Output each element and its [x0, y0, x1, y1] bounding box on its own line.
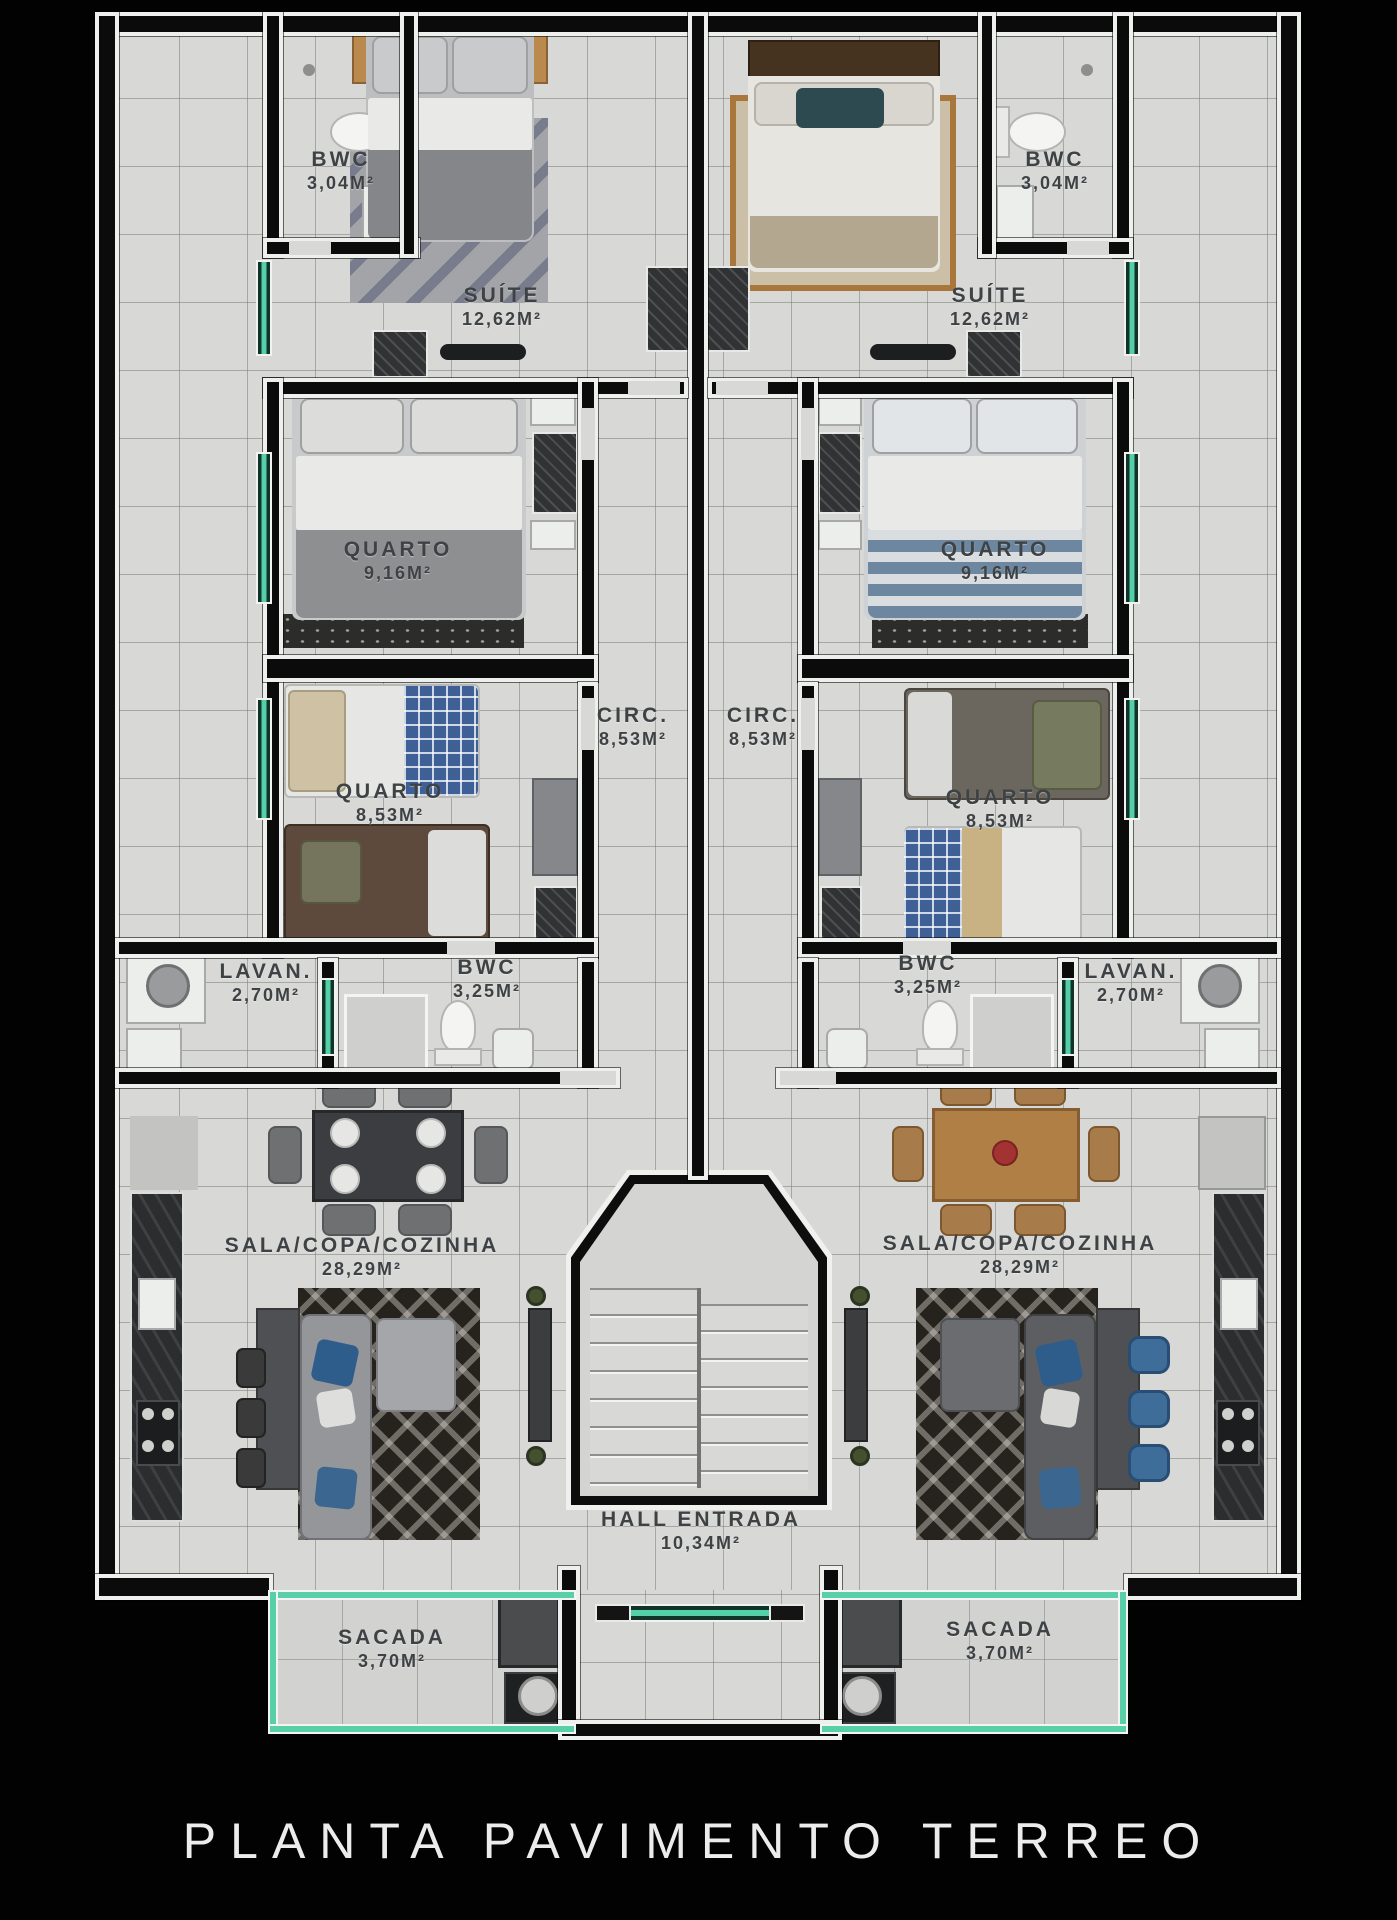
window-icon: [256, 260, 272, 356]
stool-icon: [1128, 1336, 1170, 1374]
wall-suite-quarto1-left: [263, 378, 688, 398]
balcony-rail: [820, 1590, 1128, 1600]
bed-sheet: [296, 456, 522, 530]
dresser-icon: [818, 432, 862, 514]
balcony-rail: [268, 1590, 576, 1600]
pillow-icon: [976, 398, 1078, 454]
toilet-tank: [434, 1048, 482, 1066]
balcony-rail: [820, 1724, 1128, 1734]
wall-wet-top-left: [115, 938, 598, 958]
room-name: QUARTO: [270, 780, 510, 805]
door-opening: [780, 1071, 836, 1085]
room-area: 3,70M²: [272, 1651, 512, 1672]
stool-icon: [1128, 1444, 1170, 1482]
room-name: SUÍTE: [382, 284, 622, 309]
pillow-icon: [314, 1466, 358, 1510]
room-name: CIRC.: [683, 704, 843, 729]
chair-icon: [474, 1126, 508, 1184]
wall-sala-top-right: [776, 1068, 1281, 1088]
room-area: 12,62M²: [870, 309, 1110, 330]
plant-icon: [850, 1286, 870, 1306]
room-name: QUARTO: [278, 538, 518, 563]
stair-steps: [700, 1304, 808, 1490]
room-name: BWC: [935, 148, 1175, 173]
wall-sala-top-left: [115, 1068, 620, 1088]
pillow-icon: [796, 88, 884, 128]
chair-icon: [892, 1126, 924, 1182]
chair-icon: [398, 1204, 452, 1236]
room-name: QUARTO: [880, 786, 1120, 811]
dresser-icon: [532, 432, 578, 514]
room-name: LAVAN.: [146, 960, 386, 985]
kitchen-sink-icon: [138, 1278, 176, 1330]
kitchen-counter: [1212, 1192, 1266, 1522]
centerpiece-icon: [992, 1140, 1018, 1166]
room-label-quarto1-right: QUARTO 9,16M²: [875, 538, 1115, 584]
shower-head-icon: [303, 64, 315, 76]
room-label-bwc-suite-right: BWC 3,04M²: [935, 148, 1175, 194]
wall-hall-bottom: [558, 1720, 842, 1740]
plant-icon: [850, 1446, 870, 1466]
bed-sheet: [368, 98, 532, 150]
pillow-icon: [288, 690, 346, 792]
room-label-lavan-left: LAVAN. 2,70M²: [146, 960, 386, 1006]
bed-blanket-knit: [962, 828, 1002, 942]
wall-bwc-suite-right: [1113, 12, 1133, 258]
burner-icon: [142, 1408, 154, 1420]
wardrobe-icon: [818, 778, 862, 876]
room-label-bwc-right: BWC 3,25M²: [808, 952, 1048, 998]
door-opening: [581, 408, 595, 460]
room-name: SALA/COPA/COZINHA: [202, 1234, 522, 1259]
bench-icon: [440, 344, 526, 360]
room-name: SACADA: [880, 1618, 1120, 1643]
chair-icon: [322, 1204, 376, 1236]
room-area: 8,53M²: [880, 811, 1120, 832]
balcony-rail: [268, 1724, 576, 1734]
kitchen-sink-icon: [1220, 1278, 1258, 1330]
fridge-icon: [130, 1116, 198, 1190]
pillow-icon: [872, 398, 972, 454]
room-area: 28,29M²: [202, 1259, 522, 1280]
window-icon: [1124, 260, 1140, 356]
stool-icon: [236, 1348, 266, 1388]
room-name: BWC: [221, 148, 461, 173]
room-area: 9,16M²: [875, 563, 1115, 584]
nightstand-icon: [818, 396, 862, 426]
staircase: [566, 1170, 832, 1510]
room-label-quarto2-left: QUARTO 8,53M²: [270, 780, 510, 826]
fridge-icon: [1198, 1116, 1266, 1190]
room-area: 8,53M²: [270, 805, 510, 826]
door-opening: [447, 941, 495, 955]
room-area: 8,53M²: [683, 729, 843, 750]
wall-bwc-suite-left-bottom: [263, 238, 420, 258]
room-name: SUÍTE: [870, 284, 1110, 309]
room-label-quarto1-left: QUARTO 9,16M²: [278, 538, 518, 584]
pillow-icon: [1034, 1338, 1084, 1388]
plate-icon: [330, 1118, 360, 1148]
toilet-icon: [440, 1000, 476, 1052]
room-label-sacada-left: SACADA 3,70M²: [272, 1626, 512, 1672]
entry-door-post: [769, 1604, 805, 1622]
wardrobe-icon: [646, 266, 690, 352]
room-area: 12,62M²: [382, 309, 622, 330]
kitchen-counter: [130, 1192, 184, 1522]
room-label-sacada-right: SACADA 3,70M²: [880, 1618, 1120, 1664]
wall-exterior-right: [1277, 12, 1301, 1600]
nightstand-icon: [818, 520, 862, 550]
door-opening: [560, 1071, 616, 1085]
window-icon: [1124, 452, 1140, 604]
burner-icon: [162, 1408, 174, 1420]
wall-bwc-suite-right-bottom: [978, 238, 1133, 258]
room-area: 2,70M²: [146, 985, 386, 1006]
toilet-icon: [922, 1000, 958, 1052]
bench-icon: [870, 344, 956, 360]
room-name: SALA/COPA/COZINHA: [860, 1232, 1180, 1257]
wall-party-center: [688, 12, 708, 1180]
floor-plan-canvas: BWC 3,04M² BWC 3,04M² SUÍTE 12,62M² SUÍT…: [0, 0, 1397, 1920]
wall-bwc-suite-right-left: [978, 12, 996, 258]
door-opening: [628, 381, 680, 395]
wall-quarto1-quarto2-right: [798, 655, 1133, 682]
door-opening: [289, 241, 331, 255]
pillow-icon: [300, 398, 404, 454]
sink-icon: [492, 1028, 534, 1070]
wall-exterior-left: [95, 12, 119, 1600]
plate-icon: [330, 1164, 360, 1194]
toilet-tank: [916, 1048, 964, 1066]
burner-icon: [1222, 1440, 1234, 1452]
pillow-icon: [1039, 1387, 1080, 1428]
room-name: BWC: [367, 956, 607, 981]
stool-icon: [236, 1398, 266, 1438]
cabinet-icon: [534, 886, 578, 940]
plant-icon: [526, 1286, 546, 1306]
bed-blanket: [750, 216, 938, 268]
pillow-icon: [300, 840, 362, 904]
tv-panel-icon: [844, 1308, 868, 1442]
room-area: 3,25M²: [367, 981, 607, 1002]
stool-icon: [236, 1448, 266, 1488]
room-label-sala-right: SALA/COPA/COZINHA 28,29M²: [860, 1232, 1180, 1278]
wall-bwc-suite-left: [263, 12, 283, 258]
toilet-icon: [1008, 112, 1066, 152]
room-label-suite-right: SUÍTE 12,62M²: [870, 284, 1110, 330]
pillow-icon: [315, 1387, 356, 1428]
pillow-icon: [410, 398, 518, 454]
dresser-icon: [966, 330, 1022, 378]
bed-sheet: [908, 692, 952, 796]
sink-icon: [826, 1028, 868, 1070]
room-name: QUARTO: [875, 538, 1115, 563]
cabinet-icon: [820, 886, 862, 940]
room-name: SACADA: [272, 1626, 512, 1651]
burner-icon: [1242, 1408, 1254, 1420]
burner-icon: [1222, 1408, 1234, 1420]
water-heater-icon: [518, 1676, 558, 1716]
door-opening: [1067, 241, 1109, 255]
chair-icon: [268, 1126, 302, 1184]
plan-title-text: PLANTA PAVIMENTO TERREO: [183, 1813, 1214, 1869]
room-area: 3,04M²: [221, 173, 461, 194]
room-area: 10,34M²: [581, 1533, 821, 1554]
wall-quarto1-quarto2-left: [263, 655, 598, 682]
burner-icon: [1242, 1440, 1254, 1452]
stool-icon: [1128, 1390, 1170, 1428]
room-label-bwc-suite-left: BWC 3,04M²: [221, 148, 461, 194]
dresser-icon: [372, 330, 428, 378]
room-name: HALL ENTRADA: [581, 1508, 821, 1533]
burner-icon: [142, 1440, 154, 1452]
window-icon: [1124, 698, 1140, 820]
room-area: 9,16M²: [278, 563, 518, 584]
tv-panel-icon: [528, 1308, 552, 1442]
plate-icon: [416, 1118, 446, 1148]
plant-icon: [526, 1446, 546, 1466]
wall-suite-quarto1-right: [708, 378, 1133, 398]
bed-sheet: [428, 830, 486, 936]
sofa-ottoman: [376, 1318, 456, 1412]
plate-icon: [416, 1164, 446, 1194]
wall-bwc-suite-left-right: [400, 12, 418, 258]
nightstand-icon: [530, 396, 576, 426]
room-label-hall: HALL ENTRADA 10,34M²: [581, 1508, 821, 1554]
pillow-icon: [1032, 700, 1102, 790]
burner-icon: [162, 1440, 174, 1452]
room-name: BWC: [808, 952, 1048, 977]
pillow-icon: [452, 36, 528, 94]
sofa-ottoman: [940, 1318, 1020, 1412]
shower-head-icon: [1081, 64, 1093, 76]
wall-exterior-bottom-right: [1124, 1574, 1301, 1600]
pillow-icon: [1038, 1466, 1082, 1510]
wardrobe-icon: [532, 778, 578, 876]
entry-door-post: [595, 1604, 631, 1622]
room-area: 3,70M²: [880, 1643, 1120, 1664]
room-label-quarto2-right: QUARTO 8,53M²: [880, 786, 1120, 832]
nightstand-icon: [530, 520, 576, 550]
stair-steps: [590, 1288, 698, 1490]
room-area: 28,29M²: [860, 1257, 1180, 1278]
water-heater-icon: [842, 1676, 882, 1716]
door-opening: [801, 408, 815, 460]
room-area: 3,04M²: [935, 173, 1175, 194]
room-label-circ-right: CIRC. 8,53M²: [683, 704, 843, 750]
bed-sheet: [868, 456, 1082, 530]
chair-icon: [1088, 1126, 1120, 1182]
plan-title: PLANTA PAVIMENTO TERREO: [0, 1812, 1397, 1870]
wall-exterior-bottom-left: [95, 1574, 273, 1600]
bed-blanket-plaid: [904, 828, 964, 942]
room-label-bwc-left: BWC 3,25M²: [367, 956, 607, 1002]
room-label-sala-left: SALA/COPA/COZINHA 28,29M²: [202, 1234, 522, 1280]
door-opening: [716, 381, 768, 395]
wardrobe-icon: [706, 266, 750, 352]
pillow-icon: [310, 1338, 360, 1388]
room-area: 3,25M²: [808, 977, 1048, 998]
headboard-icon: [748, 40, 940, 78]
room-label-suite-left: SUÍTE 12,62M²: [382, 284, 622, 330]
window-icon: [256, 452, 272, 604]
